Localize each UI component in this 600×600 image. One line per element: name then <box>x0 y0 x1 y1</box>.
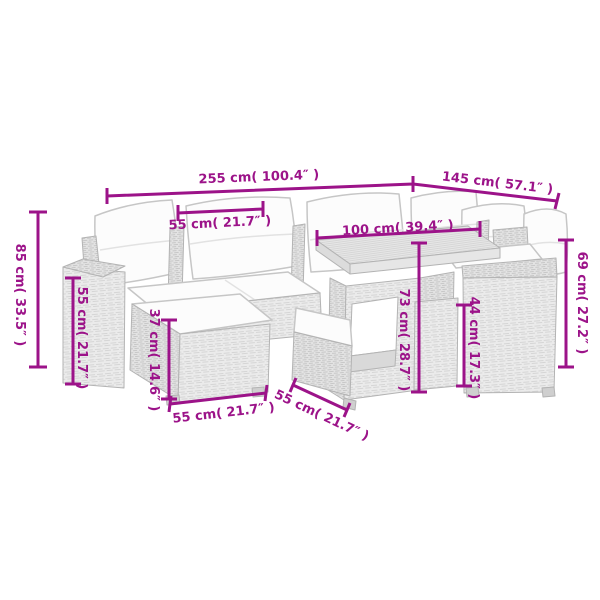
dimension-seat-height: 44 cm( 17.3″ ) <box>456 297 481 400</box>
table-shelf-opening <box>350 297 398 356</box>
dimension-label: 255 cm( 100.4″ ) <box>198 168 319 188</box>
furniture-dimension-diagram: 255 cm( 100.4″ ) 145 cm( 57.1″ ) 55 cm( … <box>0 0 600 600</box>
furniture-illustration <box>63 191 568 410</box>
diagram-canvas: 255 cm( 100.4″ ) 145 cm( 57.1″ ) 55 cm( … <box>0 0 600 600</box>
dimension-label: 55 cm( 21.7″ ) <box>74 287 89 390</box>
dimension-label: 37 cm( 14.6″ ) <box>146 309 161 412</box>
dimension-label: 85 cm( 33.5″ ) <box>12 244 27 347</box>
dimension-label: 73 cm( 28.7″ ) <box>396 289 411 392</box>
dimension-label: 55 cm( 21.7″ ) <box>172 400 276 427</box>
dimension-line <box>29 212 47 367</box>
dimension-label: 69 cm( 27.2″ ) <box>574 252 589 355</box>
right-seat-module-front <box>414 298 458 390</box>
dimension-overall-height: 85 cm( 33.5″ ) <box>12 212 47 367</box>
dimension-label: 44 cm( 17.3″ ) <box>466 297 481 400</box>
